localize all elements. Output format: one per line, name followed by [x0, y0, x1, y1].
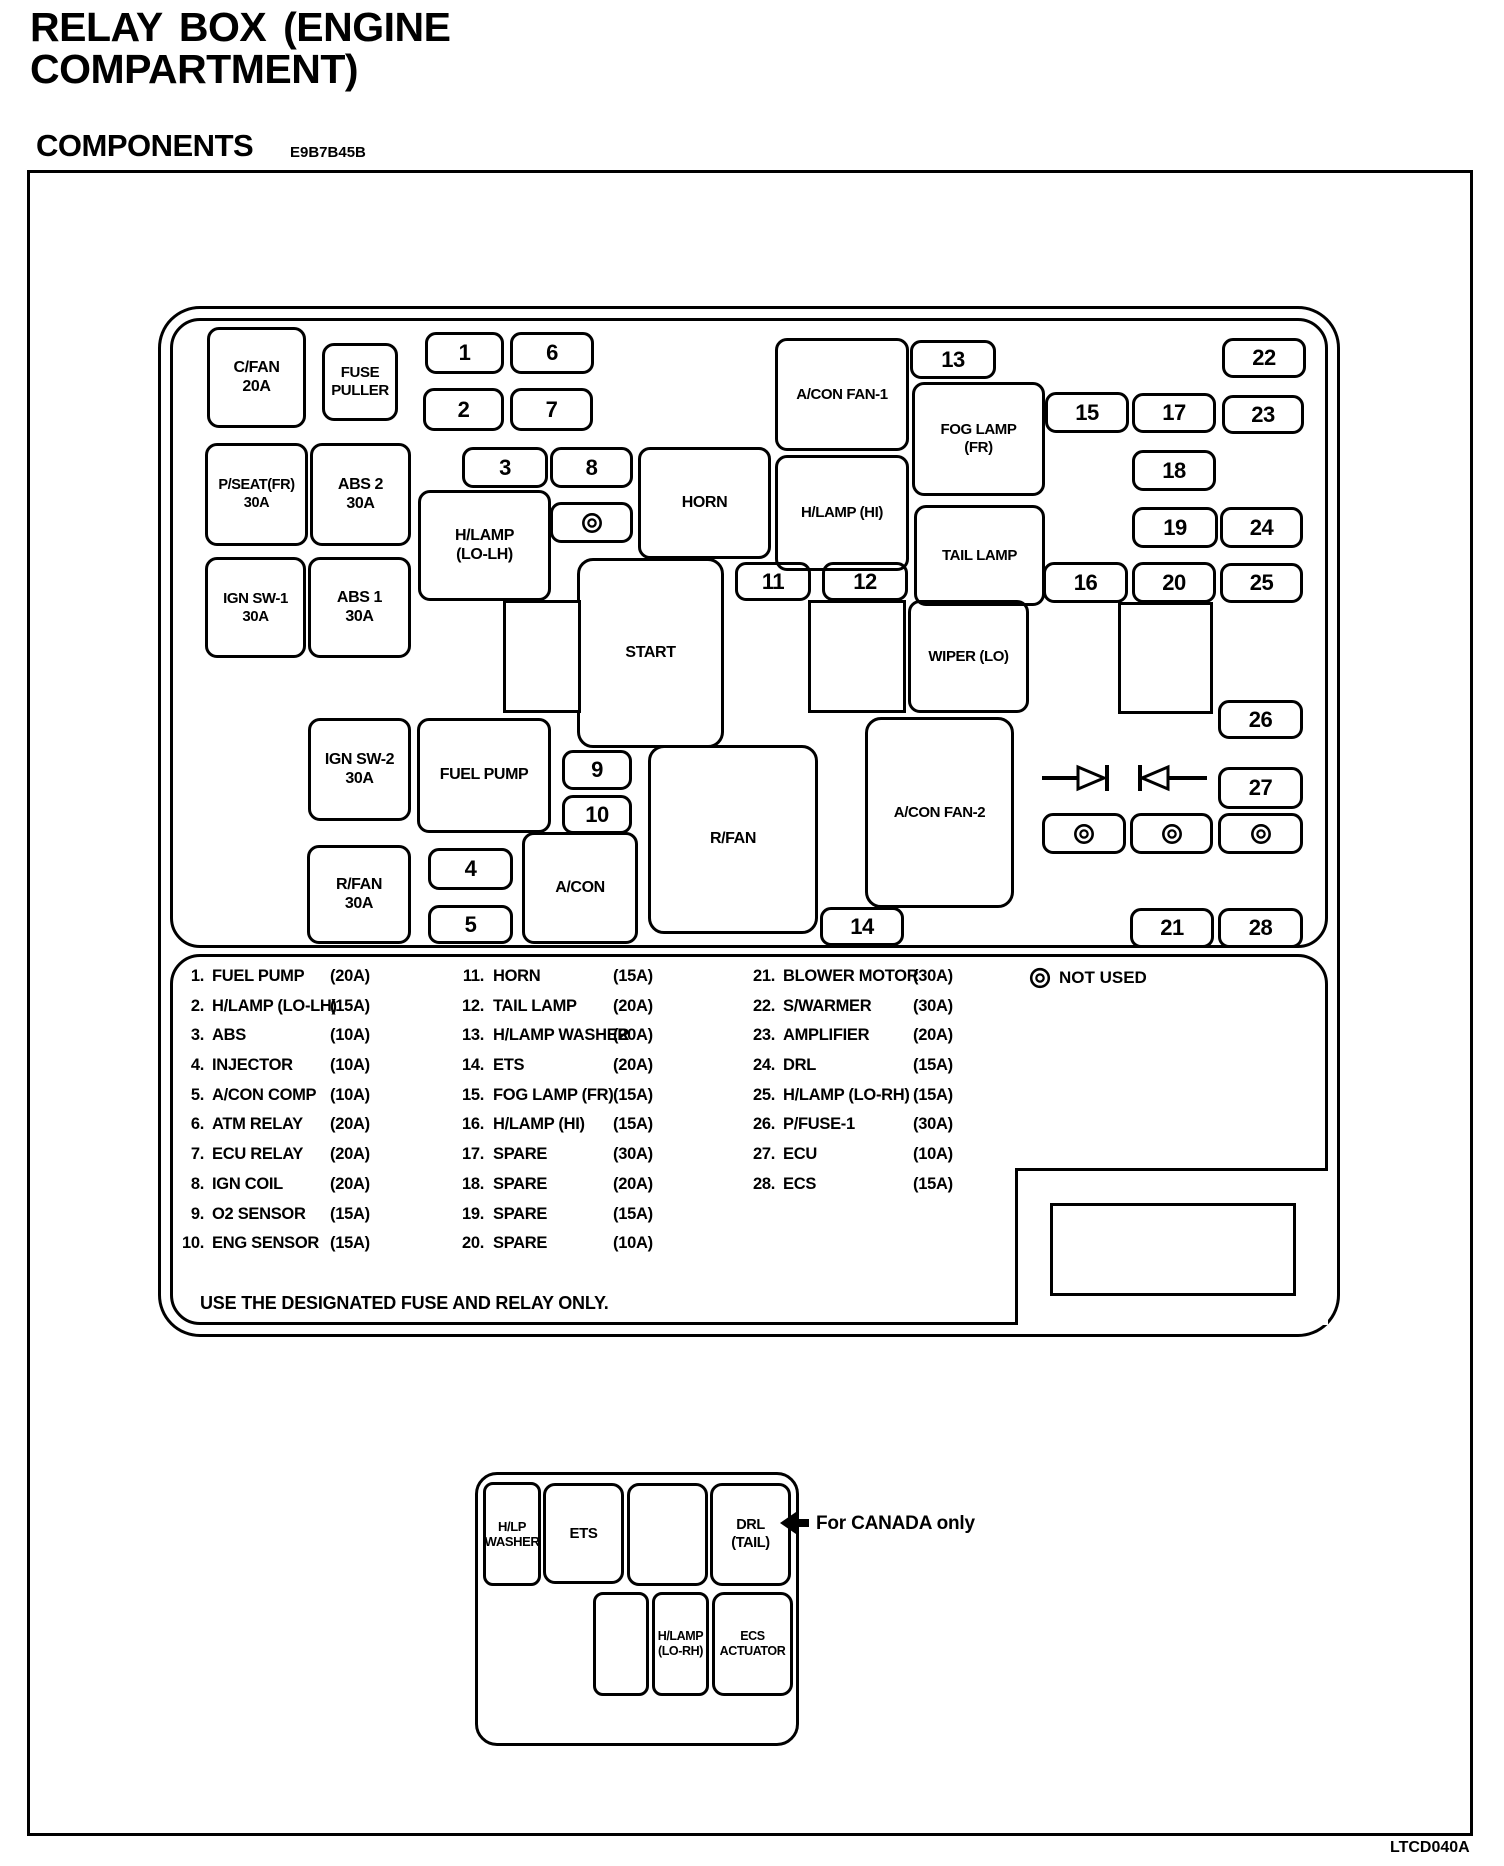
fuse-puller: FUSE PULLER: [322, 343, 398, 421]
legend-item: 16. H/LAMP (HI) (15A): [450, 1110, 740, 1140]
legend-item-amp: (15A): [913, 1170, 953, 1200]
relay-ign-sw2: IGN SW-2 30A: [308, 718, 411, 821]
relay-drl-tail: DRL (TAIL): [710, 1483, 791, 1586]
legend-item: 19. SPARE (15A): [450, 1200, 740, 1230]
legend-item-amp: (10A): [613, 1229, 653, 1259]
not-used-label: NOT USED: [1059, 968, 1147, 988]
relay-abs1: ABS 1 30A: [308, 557, 411, 658]
relay-tail-lamp: TAIL LAMP: [914, 505, 1045, 606]
relay-hlamp-hi: H/LAMP (HI): [775, 455, 909, 571]
not-used-icon: [1159, 821, 1185, 847]
legend-item-number: 9.: [178, 1200, 204, 1230]
relay-ets: ETS: [543, 1483, 624, 1584]
connector-block-1: [503, 600, 581, 713]
legend-item-name: ABS: [212, 1021, 246, 1051]
fuse-13: 13: [910, 340, 996, 379]
legend-item-amp: (15A): [613, 1081, 653, 1111]
legend-item-number: 10.: [178, 1229, 204, 1259]
fuse-23: 23: [1222, 395, 1304, 434]
legend-item-number: 7.: [178, 1140, 204, 1170]
legend-item-name: AMPLIFIER: [783, 1021, 869, 1051]
fuse-12: 12: [822, 562, 908, 601]
not-used-icon: [1248, 821, 1274, 847]
legend-item-amp: (15A): [330, 992, 370, 1022]
fuse-22: 22: [1222, 338, 1306, 378]
legend-item-name: TAIL LAMP: [493, 992, 577, 1022]
fuse-14: 14: [820, 907, 904, 946]
legend-item-number: 28.: [741, 1170, 775, 1200]
fuse-9: 9: [562, 750, 632, 790]
canada-note: For CANADA only: [816, 1513, 975, 1535]
legend-item-name: ECS: [783, 1170, 816, 1200]
legend-item-name: P/FUSE-1: [783, 1110, 855, 1140]
fuse-19: 19: [1132, 507, 1218, 548]
fuse-17: 17: [1132, 393, 1216, 433]
legend-item: 14. ETS (20A): [450, 1051, 740, 1081]
fuse-11: 11: [735, 562, 811, 601]
legend-item: 18. SPARE (20A): [450, 1170, 740, 1200]
fuse-8: 8: [550, 447, 633, 488]
relay-acon-fan2: A/CON FAN-2: [865, 717, 1014, 908]
legend-item-amp: (15A): [613, 962, 653, 992]
legend-item-name: SPARE: [493, 1170, 547, 1200]
relay-horn: HORN: [638, 447, 771, 559]
legend-item: 2. H/LAMP (LO-LH) (15A): [178, 992, 458, 1022]
fuse-7: 7: [510, 388, 593, 431]
legend-item-number: 19.: [450, 1200, 484, 1230]
legend-item-number: 4.: [178, 1051, 204, 1081]
fuse-26: 26: [1218, 700, 1303, 739]
legend-item-name: ECU RELAY: [212, 1140, 303, 1170]
legend-item-name: ATM RELAY: [212, 1110, 303, 1140]
fuse-10: 10: [562, 795, 632, 834]
fuse-18: 18: [1132, 450, 1216, 491]
not-used-icon: [579, 510, 605, 536]
legend-item: 9. O2 SENSOR (15A): [178, 1200, 458, 1230]
relay-ecs-actuator: ECS ACTUATOR: [712, 1592, 793, 1696]
legend-notch-connector: [1050, 1203, 1296, 1296]
legend-item-number: 20.: [450, 1229, 484, 1259]
legend-item-name: SPARE: [493, 1229, 547, 1259]
legend-item-number: 22.: [741, 992, 775, 1022]
legend-item-amp: (15A): [913, 1051, 953, 1081]
not-used-icon: [1071, 821, 1097, 847]
relay-pseat-fr: P/SEAT(FR) 30A: [205, 443, 308, 546]
legend-item: 1. FUEL PUMP (20A): [178, 962, 458, 992]
legend-item-number: 13.: [450, 1021, 484, 1051]
legend-item: 27. ECU (10A): [741, 1140, 1041, 1170]
legend-item-name: HORN: [493, 962, 540, 992]
relay-acon-fan1: A/CON FAN-1: [775, 338, 909, 451]
diode-icons: [1040, 760, 1210, 796]
fuse-20: 20: [1132, 562, 1216, 603]
fuse-3: 3: [462, 447, 548, 488]
arrow-left-icon: [780, 1511, 810, 1535]
relay-rfan-30a: R/FAN 30A: [307, 845, 411, 944]
fuse-25: 25: [1220, 563, 1303, 603]
section-code: E9B7B45B: [290, 144, 366, 161]
legend-item: 4. INJECTOR (10A): [178, 1051, 458, 1081]
legend-item-name: ENG SENSOR: [212, 1229, 319, 1259]
legend-item-name: H/LAMP (HI): [493, 1110, 585, 1140]
legend-item-number: 8.: [178, 1170, 204, 1200]
legend-item-number: 14.: [450, 1051, 484, 1081]
fuse-6: 6: [510, 332, 594, 374]
legend-item-amp: (10A): [330, 1021, 370, 1051]
legend-item-amp: (20A): [613, 1170, 653, 1200]
legend-item-name: A/CON COMP: [212, 1081, 316, 1111]
legend-item-number: 26.: [741, 1110, 775, 1140]
legend-item-number: 12.: [450, 992, 484, 1022]
legend-item-amp: (20A): [330, 1110, 370, 1140]
manual-page: RELAY BOX (ENGINE COMPARTMENT) COMPONENT…: [0, 0, 1504, 1866]
page-title: RELAY BOX (ENGINE COMPARTMENT): [30, 6, 450, 90]
legend-item-number: 3.: [178, 1021, 204, 1051]
fuse-not-used-c: [1130, 813, 1213, 854]
relay-hlamp-lo-lh: H/LAMP (LO-LH): [418, 490, 551, 601]
legend-item-name: SPARE: [493, 1200, 547, 1230]
legend-item: 25. H/LAMP (LO-RH) (15A): [741, 1081, 1041, 1111]
legend-item-name: SPARE: [493, 1140, 547, 1170]
connector-block-2: [808, 600, 906, 713]
relay-blank-1: [627, 1483, 708, 1586]
legend-item-number: 27.: [741, 1140, 775, 1170]
legend-item: 8. IGN COIL (20A): [178, 1170, 458, 1200]
legend-item-name: INJECTOR: [212, 1051, 293, 1081]
legend-footer-note: USE THE DESIGNATED FUSE AND RELAY ONLY.: [200, 1293, 609, 1314]
fuse-4: 4: [428, 848, 513, 890]
legend-item-amp: (20A): [330, 1140, 370, 1170]
fuse-not-used-d: [1218, 813, 1303, 854]
legend-item-number: 21.: [741, 962, 775, 992]
fuse-2: 2: [423, 388, 504, 431]
legend-item-name: H/LAMP (LO-RH): [783, 1081, 910, 1111]
legend-item-name: DRL: [783, 1051, 816, 1081]
legend-item: 13. H/LAMP WASHER (20A): [450, 1021, 740, 1051]
legend-item: 3. ABS (10A): [178, 1021, 458, 1051]
fuse-not-used-a: [550, 502, 633, 543]
legend-item-amp: (15A): [330, 1200, 370, 1230]
relay-ign-sw1: IGN SW-1 30A: [205, 557, 306, 658]
legend-item: 17. SPARE (30A): [450, 1140, 740, 1170]
legend-column-2: 11. HORN (15A) 12. TAIL LAMP (20A) 13. H…: [450, 962, 740, 1259]
legend-item-number: 24.: [741, 1051, 775, 1081]
legend-item-amp: (15A): [330, 1229, 370, 1259]
legend-column-3: 21. BLOWER MOTOR (30A) 22. S/WARMER (30A…: [741, 962, 1041, 1200]
legend-item: 23. AMPLIFIER (20A): [741, 1021, 1041, 1051]
legend-item: 28. ECS (15A): [741, 1170, 1041, 1200]
relay-abs2: ABS 2 30A: [310, 443, 411, 546]
fuse-27: 27: [1218, 767, 1303, 809]
legend-item-amp: (20A): [330, 962, 370, 992]
not-used-icon: [1028, 966, 1052, 990]
legend-item-name: H/LAMP (LO-LH): [212, 992, 337, 1022]
legend-item-number: 15.: [450, 1081, 484, 1111]
figure-code: LTCD040A: [1390, 1839, 1470, 1857]
legend-item: 10. ENG SENSOR (15A): [178, 1229, 458, 1259]
legend-item-name: O2 SENSOR: [212, 1200, 306, 1230]
fuse-not-used-b: [1042, 813, 1126, 854]
legend-item-amp: (20A): [613, 992, 653, 1022]
legend-item-amp: (10A): [330, 1081, 370, 1111]
legend-item: 20. SPARE (10A): [450, 1229, 740, 1259]
legend-item-amp: (20A): [330, 1170, 370, 1200]
legend-item-number: 16.: [450, 1110, 484, 1140]
legend-item: 26. P/FUSE-1 (30A): [741, 1110, 1041, 1140]
legend-item-amp: (15A): [913, 1081, 953, 1111]
fuse-24: 24: [1220, 507, 1303, 548]
legend-item-name: IGN COIL: [212, 1170, 283, 1200]
relay-acon: A/CON: [522, 832, 638, 944]
legend-item-amp: (10A): [913, 1140, 953, 1170]
relay-hlamp-lo-rh-canada: H/LAMP (LO-RH): [652, 1592, 709, 1696]
relay-hlp-washer: H/LP WASHER: [483, 1482, 541, 1586]
not-used-legend: NOT USED: [1028, 966, 1147, 990]
relay-rfan: R/FAN: [648, 745, 818, 934]
fuse-15: 15: [1045, 392, 1129, 433]
legend-item-number: 17.: [450, 1140, 484, 1170]
fuse-5: 5: [428, 905, 513, 944]
legend-item: 11. HORN (15A): [450, 962, 740, 992]
legend-item-amp: (30A): [913, 962, 953, 992]
legend-item-amp: (20A): [613, 1021, 653, 1051]
connector-block-3: [1118, 602, 1213, 714]
legend-item-number: 2.: [178, 992, 204, 1022]
legend-item-name: FUEL PUMP: [212, 962, 304, 992]
legend-item: 21. BLOWER MOTOR (30A): [741, 962, 1041, 992]
relay-blank-2: [593, 1592, 649, 1696]
legend-item-name: S/WARMER: [783, 992, 871, 1022]
fuse-16: 16: [1043, 562, 1128, 603]
legend-item-number: 1.: [178, 962, 204, 992]
legend-item-amp: (20A): [913, 1021, 953, 1051]
legend-item-name: ETS: [493, 1051, 524, 1081]
section-heading: COMPONENTS: [36, 128, 253, 164]
legend-item-amp: (30A): [913, 992, 953, 1022]
relay-start: START: [577, 558, 724, 748]
legend-item-amp: (10A): [330, 1051, 370, 1081]
relay-fog-lamp-fr: FOG LAMP (FR): [912, 382, 1045, 496]
legend-item: 7. ECU RELAY (20A): [178, 1140, 458, 1170]
legend-item: 5. A/CON COMP (10A): [178, 1081, 458, 1111]
legend-item-number: 18.: [450, 1170, 484, 1200]
legend-item-number: 25.: [741, 1081, 775, 1111]
legend-item-number: 23.: [741, 1021, 775, 1051]
legend-item-number: 5.: [178, 1081, 204, 1111]
legend-item: 12. TAIL LAMP (20A): [450, 992, 740, 1022]
legend-item-amp: (15A): [613, 1200, 653, 1230]
legend-item-name: BLOWER MOTOR: [783, 962, 918, 992]
relay-cfan: C/FAN 20A: [207, 327, 306, 428]
fuse-21: 21: [1130, 908, 1214, 948]
relay-fuel-pump: FUEL PUMP: [417, 718, 551, 833]
legend-item-amp: (15A): [613, 1110, 653, 1140]
legend-item-name: ECU: [783, 1140, 817, 1170]
legend-item: 6. ATM RELAY (20A): [178, 1110, 458, 1140]
legend-column-1: 1. FUEL PUMP (20A) 2. H/LAMP (LO-LH) (15…: [178, 962, 458, 1259]
legend-item-number: 11.: [450, 962, 484, 992]
legend-item-name: FOG LAMP (FR): [493, 1081, 613, 1111]
legend-item-amp: (30A): [913, 1110, 953, 1140]
legend-item: 15. FOG LAMP (FR) (15A): [450, 1081, 740, 1111]
legend-item-number: 6.: [178, 1110, 204, 1140]
legend-item-name: H/LAMP WASHER: [493, 1021, 629, 1051]
legend-item: 24. DRL (15A): [741, 1051, 1041, 1081]
relay-wiper-lo: WIPER (LO): [908, 600, 1029, 713]
legend-item: 22. S/WARMER (30A): [741, 992, 1041, 1022]
legend-item-amp: (30A): [613, 1140, 653, 1170]
fuse-1: 1: [425, 332, 504, 374]
fuse-28: 28: [1218, 908, 1303, 948]
legend-item-amp: (20A): [613, 1051, 653, 1081]
